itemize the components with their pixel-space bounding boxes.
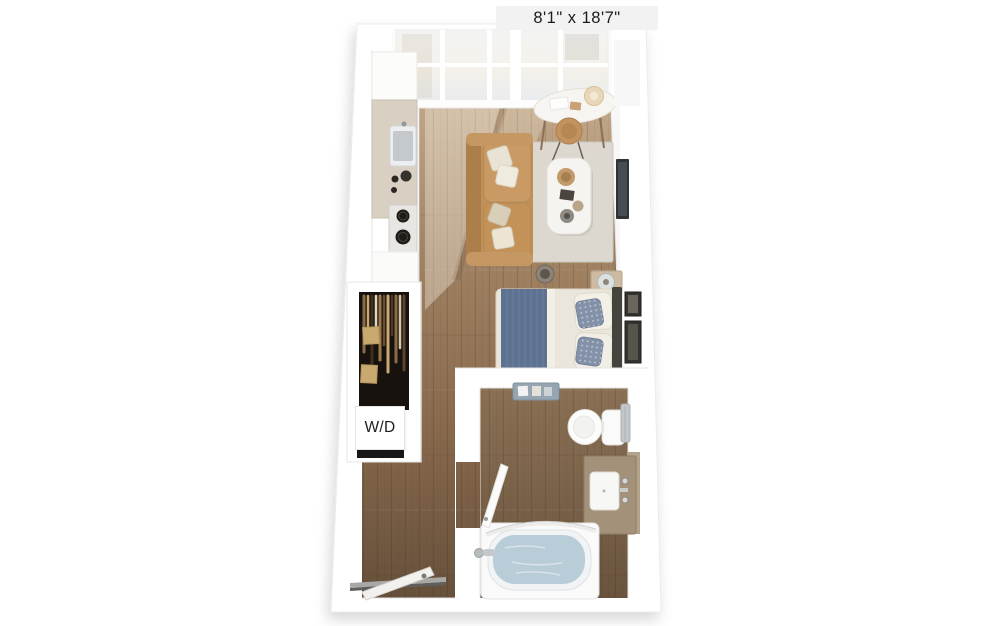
side-stool: [536, 265, 554, 283]
bed: [496, 287, 622, 375]
vanity-sink: [584, 452, 640, 534]
washer-dryer-base: [357, 449, 404, 458]
refrigerator: [372, 52, 417, 106]
decor-book: [559, 189, 574, 201]
wall-art: [625, 292, 641, 363]
floor-plan-page: 8'1" x 18'7" W/D: [0, 0, 998, 626]
bathtub: [475, 521, 600, 599]
wall-shading: [614, 40, 640, 106]
bathroom: [455, 368, 650, 599]
dimension-label: 8'1" x 18'7": [496, 6, 658, 30]
tub-faucet: [475, 549, 484, 558]
bath-water: [493, 535, 585, 584]
toilet: [568, 410, 625, 446]
closet-box: [361, 365, 378, 384]
kettle: [401, 171, 412, 182]
sofa: [466, 133, 533, 266]
headboard: [612, 287, 622, 375]
closet-box: [363, 327, 380, 345]
towel-rack: [621, 404, 630, 442]
bed-throw: [501, 289, 547, 373]
floor-plan-image: [0, 0, 998, 626]
coffee-table: [547, 158, 593, 236]
bathroom-shelf: [513, 383, 559, 400]
kitchen-sink: [390, 122, 416, 167]
kitchen-lower-cabinet: [372, 252, 418, 284]
decor-vase-tan: [573, 201, 584, 212]
washer-dryer-label: W/D: [356, 407, 404, 449]
